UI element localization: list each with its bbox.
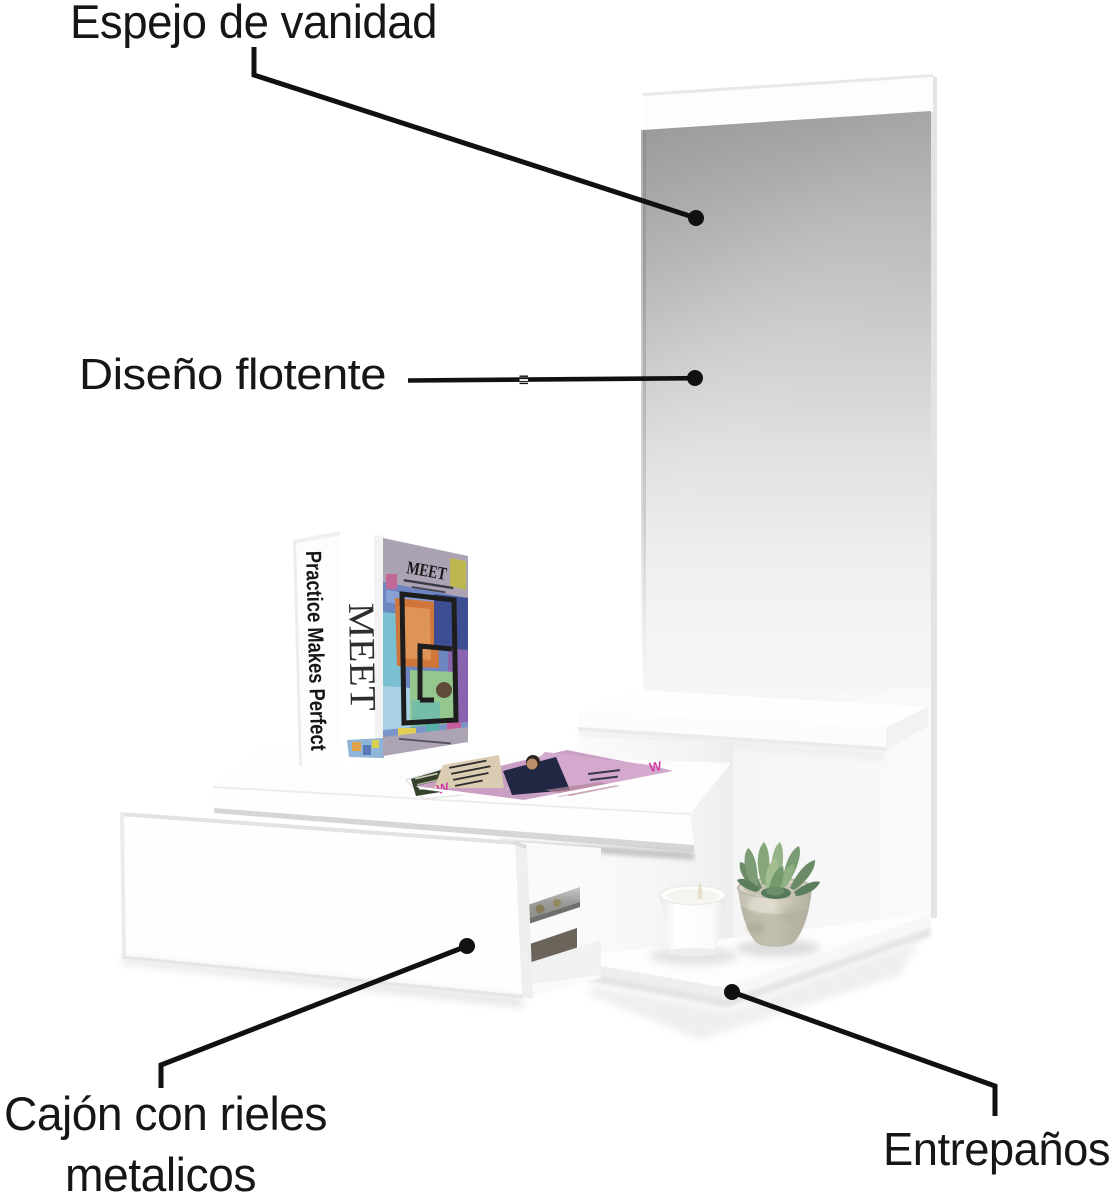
svg-text:Espejo de vanidad: Espejo de vanidad xyxy=(70,0,437,48)
svg-text:Entrepaños: Entrepaños xyxy=(883,1123,1110,1175)
svg-text:metalicos: metalicos xyxy=(65,1148,256,1193)
svg-text:Diseño flotente: Diseño flotente xyxy=(79,350,386,399)
svg-text:Cajón con rieles: Cajón con rieles xyxy=(4,1087,327,1140)
svg-text:MEET: MEET xyxy=(340,602,383,711)
svg-text:Practice Makes Perfect: Practice Makes Perfect xyxy=(301,550,331,751)
